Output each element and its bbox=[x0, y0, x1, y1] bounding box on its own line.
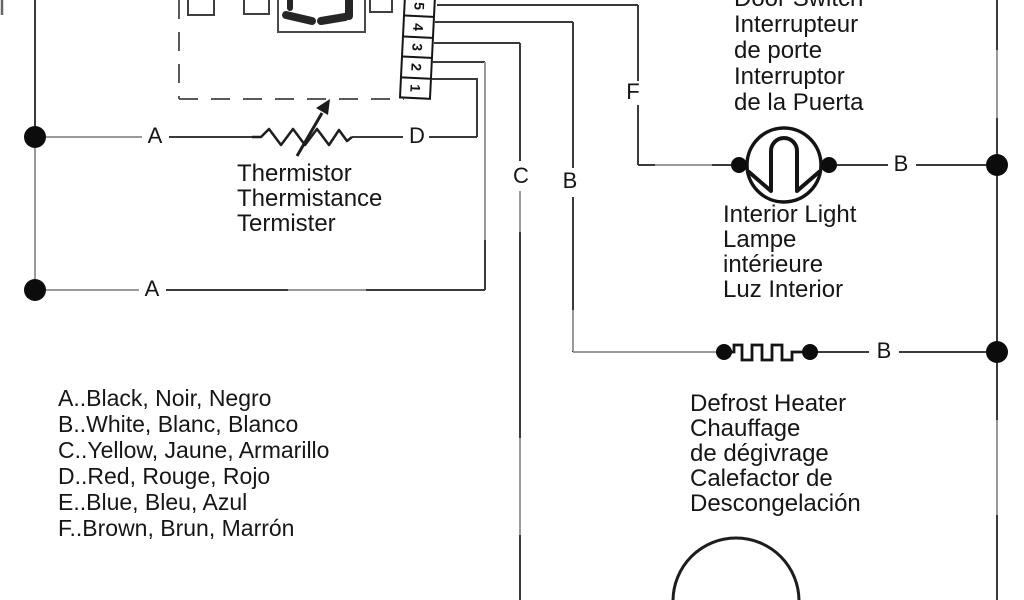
wiring-diagram: 5 4 3 2 1 A D A C B F B B Door Switch In… bbox=[0, 0, 1024, 600]
wire-label-d: D bbox=[405, 125, 429, 147]
connector-pin-3: 3 bbox=[403, 37, 432, 59]
heater-terminal-dot bbox=[802, 344, 818, 360]
wire-label-b-lamp: B bbox=[890, 153, 913, 175]
legend-entry: E..Blue, Bleu, Azul bbox=[58, 489, 329, 515]
interior-light-symbol-icon bbox=[747, 128, 821, 202]
legend-entry: D..Red, Rouge, Rojo bbox=[58, 463, 329, 489]
wire-color-legend: A..Black, Noir, Negro B..White, Blanc, B… bbox=[58, 385, 329, 541]
connector-pin-5: 5 bbox=[405, 0, 434, 18]
wire-label-a-top: A bbox=[144, 125, 167, 147]
terminal-square bbox=[370, 0, 392, 12]
lamp-terminal-dot bbox=[821, 157, 837, 173]
junction-dot bbox=[986, 154, 1008, 176]
connector-pin-2: 2 bbox=[402, 58, 431, 80]
defrost-heater-label: Defrost Heater Chauffage de dégivrage Ca… bbox=[690, 391, 861, 516]
wire-label-c: C bbox=[509, 165, 533, 187]
connector-pin-1: 1 bbox=[401, 78, 430, 98]
thermistor-symbol-icon bbox=[252, 99, 352, 156]
wire-label-b-vert: B bbox=[559, 170, 582, 192]
wire-label-b-heater: B bbox=[873, 340, 896, 362]
thermistor-label: Thermistor Thermistance Termister bbox=[237, 161, 382, 236]
wire-label-a-lower: A bbox=[141, 278, 164, 300]
wire-label-f: F bbox=[622, 81, 643, 103]
legend-entry: F..Brown, Brun, Marrón bbox=[58, 515, 329, 541]
board-connector-strip: 5 4 3 2 1 bbox=[399, 0, 436, 100]
lamp-terminal-dot bbox=[731, 157, 747, 173]
heater-terminal-dot bbox=[716, 344, 732, 360]
compressor-symbol-icon bbox=[673, 538, 799, 600]
legend-entry: A..Black, Noir, Negro bbox=[58, 385, 329, 411]
connector-pin-4: 4 bbox=[404, 17, 433, 39]
junction-dot bbox=[24, 126, 46, 148]
junction-dot bbox=[24, 279, 46, 301]
legend-entry: B..White, Blanc, Blanco bbox=[58, 411, 329, 437]
terminal-square bbox=[188, 0, 214, 15]
legend-entry: C..Yellow, Jaune, Armarillo bbox=[58, 437, 329, 463]
interior-light-label: Interior Light Lampe intérieure Luz Inte… bbox=[723, 202, 856, 302]
junction-dots bbox=[24, 126, 1008, 363]
door-switch-label: Door Switch Interrupteur de porte Interr… bbox=[734, 0, 863, 116]
terminal-square bbox=[244, 0, 269, 14]
junction-dot bbox=[986, 341, 1008, 363]
